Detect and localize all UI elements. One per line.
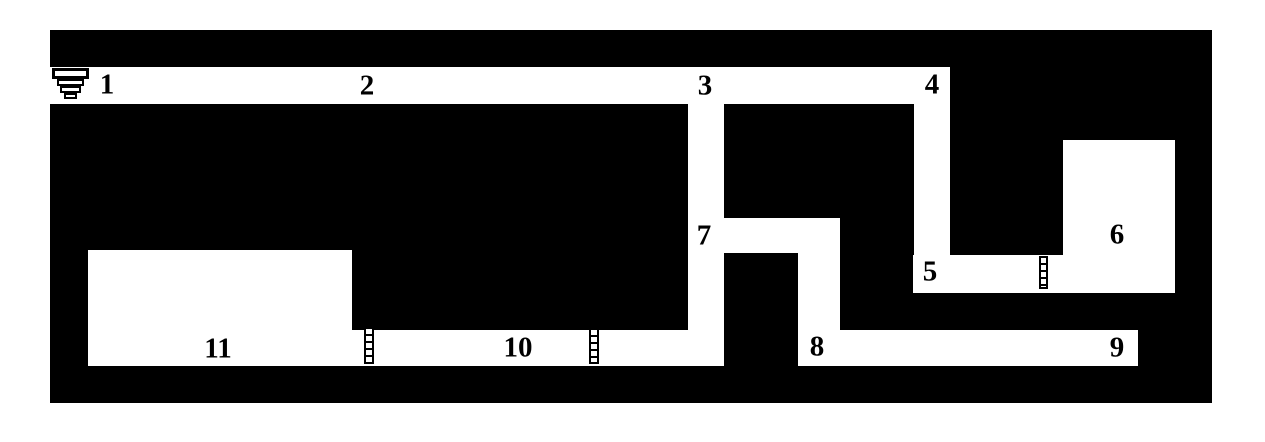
branch-passage-7 <box>723 218 840 253</box>
cave-map: 1234567891011 <box>0 0 1265 442</box>
entrance-step-tier <box>64 93 77 99</box>
location-label-11: 11 <box>204 335 231 364</box>
corridor-11-to-10 <box>352 330 724 366</box>
ladder-icon <box>589 328 599 364</box>
shaft-7-to-8 <box>798 253 840 333</box>
location-label-8: 8 <box>810 333 825 362</box>
entrance-step-tier <box>57 79 84 86</box>
location-label-3: 3 <box>698 72 713 101</box>
corridor-8-to-9 <box>798 330 1138 366</box>
location-label-5: 5 <box>923 258 938 287</box>
location-label-2: 2 <box>360 72 375 101</box>
ladder-icon <box>364 327 374 364</box>
shaft-below-4 <box>914 104 950 258</box>
entrance-steps-icon <box>52 68 89 99</box>
room-6 <box>1063 140 1175 293</box>
location-label-1: 1 <box>100 71 115 100</box>
entrance-step-tier <box>52 68 89 79</box>
location-label-10: 10 <box>504 334 533 363</box>
location-label-4: 4 <box>925 71 940 100</box>
ladder-icon <box>1039 256 1048 289</box>
location-label-9: 9 <box>1110 334 1125 363</box>
entrance-step-tier <box>60 86 81 93</box>
corridor-top-1-to-4 <box>50 67 950 104</box>
location-label-7: 7 <box>697 222 712 251</box>
location-label-6: 6 <box>1110 221 1125 250</box>
